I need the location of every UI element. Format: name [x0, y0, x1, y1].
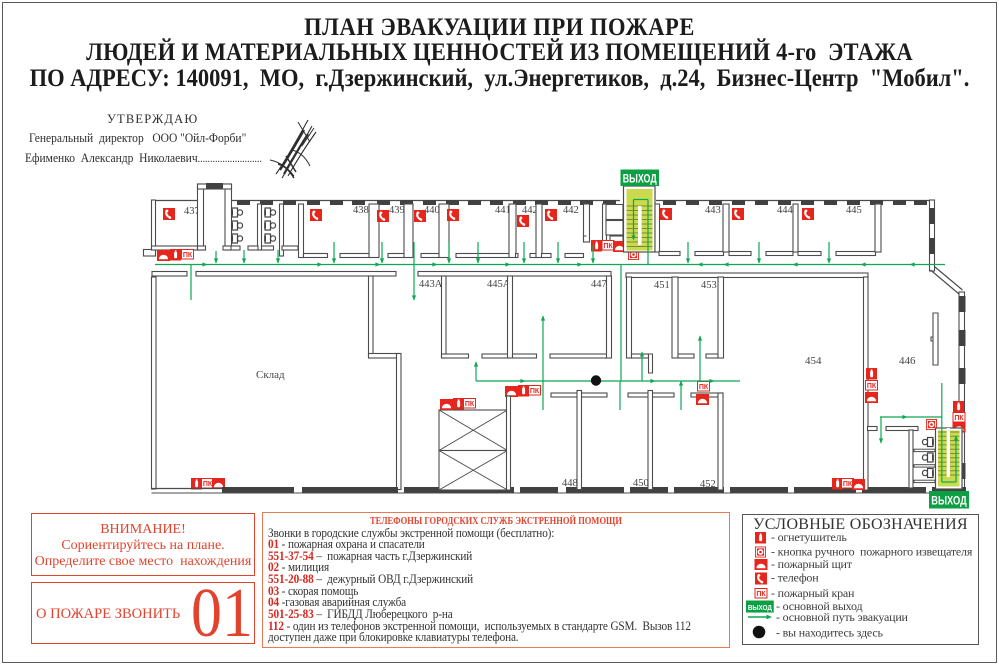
svg-text:447: 447 — [591, 279, 607, 290]
svg-text:450: 450 — [633, 478, 649, 489]
svg-text:- пожарный щит: - пожарный щит — [771, 557, 853, 571]
svg-text:439: 439 — [389, 205, 405, 216]
svg-text:442: 442 — [522, 205, 538, 216]
svg-text:442: 442 — [563, 205, 579, 216]
svg-text:- телефон: - телефон — [771, 571, 819, 585]
svg-text:448: 448 — [562, 478, 578, 489]
svg-text:440: 440 — [424, 205, 440, 216]
svg-text:ВЫХОД: ВЫХОД — [748, 603, 773, 612]
svg-text:443: 443 — [705, 205, 721, 216]
svg-text:441: 441 — [495, 205, 511, 216]
svg-text:453: 453 — [701, 280, 717, 291]
svg-text:Склад: Склад — [256, 369, 285, 381]
svg-text:446: 446 — [899, 355, 916, 367]
svg-text:452: 452 — [700, 479, 716, 490]
svg-text:444: 444 — [777, 205, 794, 216]
svg-text:443А: 443А — [419, 279, 443, 290]
svg-text:451: 451 — [654, 280, 670, 291]
svg-text:- пожарный кран: - пожарный кран — [771, 586, 855, 600]
svg-text:445: 445 — [846, 205, 862, 216]
svg-text:454: 454 — [805, 355, 822, 367]
svg-text:- основной путь эвакуации: - основной путь эвакуации — [776, 610, 909, 624]
svg-text:438: 438 — [353, 205, 369, 216]
svg-text:ВЫХОД: ВЫХОД — [931, 494, 967, 508]
svg-text:- вы находитесь здесь: - вы находитесь здесь — [776, 626, 883, 640]
svg-text:ВЫХОД: ВЫХОД — [623, 174, 657, 186]
svg-text:- огнетушитель: - огнетушитель — [771, 530, 847, 544]
